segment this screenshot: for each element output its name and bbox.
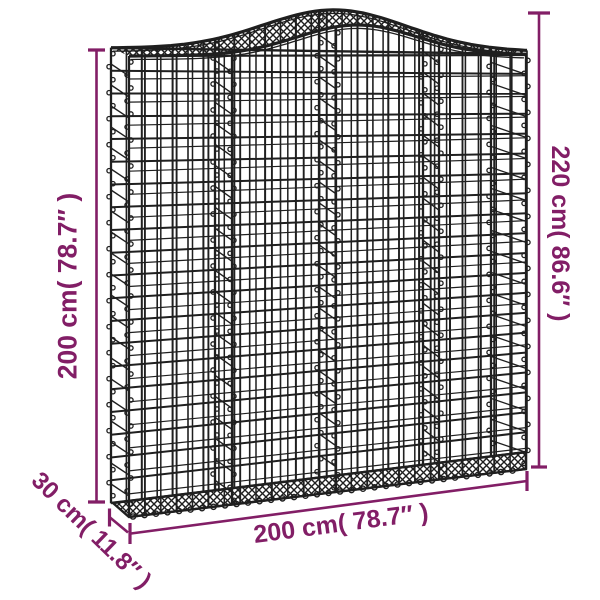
svg-text:200 cm( 78.7″ ): 200 cm( 78.7″ ): [53, 193, 83, 380]
svg-text:220 cm( 86.6″ ): 220 cm( 86.6″ ): [546, 146, 574, 322]
